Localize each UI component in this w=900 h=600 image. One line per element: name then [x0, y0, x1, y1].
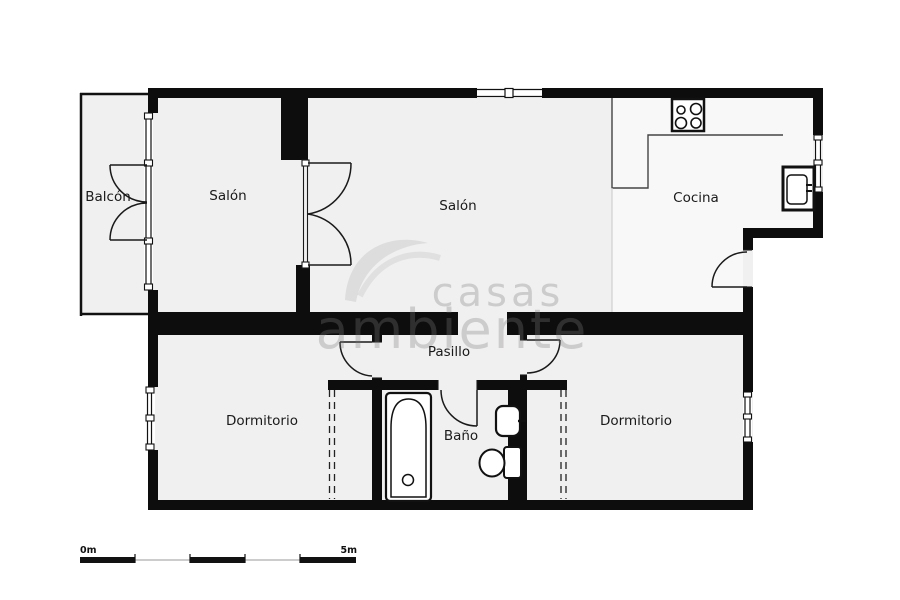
window-mullion: [146, 415, 154, 421]
scale-segment: [80, 557, 135, 563]
tub-drain: [403, 475, 414, 486]
label-pasillo: Pasillo: [428, 344, 470, 360]
floorplan-drawing: casas ambiente Balcón Salón Salón Cocina…: [0, 0, 900, 600]
wall-left-1: [148, 88, 158, 113]
wall-right-low-1: [743, 228, 753, 250]
wall-right-low-2: [743, 287, 753, 392]
window-mullion: [744, 437, 752, 442]
window-dormitorio-right: [743, 392, 752, 442]
wall-top-right: [542, 88, 823, 98]
basin: [496, 406, 520, 436]
label-salon-main: Salón: [439, 198, 476, 214]
scale-start-label: 0m: [80, 545, 97, 556]
stove-icon: [672, 99, 704, 131]
window-dormitorio-left: [146, 387, 155, 450]
scale-segment: [300, 557, 356, 563]
window-mullion: [814, 135, 822, 140]
room-balcon: [81, 95, 148, 315]
sink-basin: [787, 175, 807, 204]
door-frame-cap: [302, 160, 309, 166]
bathtub-icon: [386, 393, 431, 501]
floorplan-canvas: casas ambiente Balcón Salón Salón Cocina…: [0, 0, 900, 600]
burner: [691, 118, 701, 128]
window-mullion: [814, 160, 822, 165]
wall-right-top-1: [813, 88, 823, 135]
burner: [676, 118, 687, 129]
toilet-tank: [504, 447, 521, 478]
window-mullion: [145, 113, 153, 119]
toilet-bowl: [480, 450, 505, 477]
burner: [691, 104, 702, 115]
wall-salon-divider-top: [281, 88, 308, 160]
door-frame-cap: [302, 262, 309, 268]
toilet-icon: [480, 447, 522, 478]
kitchen-sink-icon: [783, 167, 814, 210]
label-bano: Baño: [444, 428, 478, 444]
scale-bar: 0m 5m: [80, 545, 357, 563]
window-mullion: [744, 414, 752, 419]
window-mullion: [505, 89, 513, 98]
wall-left-2: [148, 290, 158, 387]
wall-bath-left: [372, 378, 382, 500]
wall-pasillo-bottom-right: [477, 380, 567, 390]
room-cocina-lower: [612, 228, 743, 312]
wall-pasillo-bottom-left: [328, 380, 438, 390]
window-mullion: [146, 444, 154, 450]
window-salon-top: [477, 88, 542, 98]
wall-top-left: [148, 88, 477, 98]
label-dormitorio-right: Dormitorio: [600, 413, 672, 429]
scale-end-label: 5m: [340, 545, 357, 556]
label-dormitorio-left: Dormitorio: [226, 413, 298, 429]
label-balcon: Balcón: [85, 189, 131, 205]
wall-bottom: [148, 500, 753, 510]
wall-right-low-3: [743, 442, 753, 510]
label-salon-small: Salón: [209, 188, 246, 204]
window-mullion: [146, 387, 154, 393]
window-mullion: [744, 392, 752, 397]
wall-salon-divider-bottom: [296, 265, 310, 312]
burner: [677, 106, 685, 114]
wall-dorm-right-stub-bottom: [520, 375, 527, 380]
outside-right: [753, 238, 823, 335]
wall-kitchen-step: [745, 228, 823, 238]
scale-segment: [190, 557, 245, 563]
window-mullion: [145, 238, 153, 244]
label-cocina: Cocina: [673, 190, 719, 206]
window-mullion: [145, 284, 153, 290]
